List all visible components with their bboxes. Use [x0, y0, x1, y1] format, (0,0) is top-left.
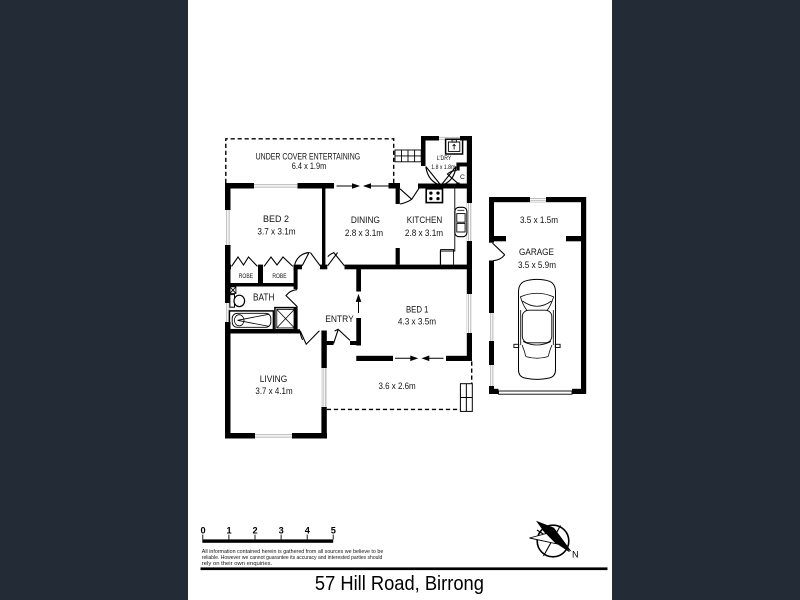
- svg-text:3.6 x 2.6m: 3.6 x 2.6m: [379, 381, 416, 391]
- svg-text:BED 2: BED 2: [263, 214, 289, 225]
- svg-text:BATH: BATH: [253, 293, 275, 304]
- svg-text:L'DRY: L'DRY: [437, 155, 452, 162]
- svg-text:3.7 x 3.1m: 3.7 x 3.1m: [257, 227, 295, 237]
- svg-text:1: 1: [226, 526, 231, 536]
- svg-text:1.8 x 1.8m: 1.8 x 1.8m: [431, 164, 455, 171]
- svg-text:LIVING: LIVING: [260, 374, 288, 385]
- svg-text:2.8 x 3.1m: 2.8 x 3.1m: [405, 228, 443, 238]
- svg-text:N: N: [572, 550, 579, 560]
- svg-text:0: 0: [200, 526, 205, 536]
- svg-text:3: 3: [279, 526, 284, 536]
- svg-text:3.5 x 1.5m: 3.5 x 1.5m: [520, 215, 558, 225]
- svg-text:2: 2: [253, 526, 258, 536]
- svg-text:5: 5: [331, 526, 336, 536]
- svg-text:2.8 x 3.1m: 2.8 x 3.1m: [345, 228, 383, 238]
- svg-text:UNDER COVER ENTERTAINING: UNDER COVER ENTERTAINING: [256, 151, 361, 161]
- svg-text:4.3 x 3.5m: 4.3 x 3.5m: [398, 317, 436, 327]
- svg-text:57 Hill Road, Birrong: 57 Hill Road, Birrong: [315, 572, 484, 595]
- svg-text:C: C: [460, 174, 465, 181]
- svg-text:ROBE: ROBE: [239, 273, 254, 280]
- svg-text:GARAGE: GARAGE: [519, 247, 554, 258]
- svg-text:DINING: DINING: [351, 215, 380, 226]
- svg-text:BED 1: BED 1: [406, 305, 429, 316]
- svg-text:rely on their own enquiries.: rely on their own enquiries.: [202, 561, 273, 567]
- svg-text:KITCHEN: KITCHEN: [407, 215, 443, 226]
- svg-text:ROBE: ROBE: [272, 273, 287, 280]
- svg-text:6.4 x 1.9m: 6.4 x 1.9m: [292, 161, 327, 171]
- svg-text:4: 4: [305, 526, 311, 536]
- svg-text:ENTRY: ENTRY: [325, 314, 354, 325]
- svg-text:3.5 x 5.9m: 3.5 x 5.9m: [518, 260, 556, 270]
- svg-text:3.7 x 4.1m: 3.7 x 4.1m: [255, 386, 292, 396]
